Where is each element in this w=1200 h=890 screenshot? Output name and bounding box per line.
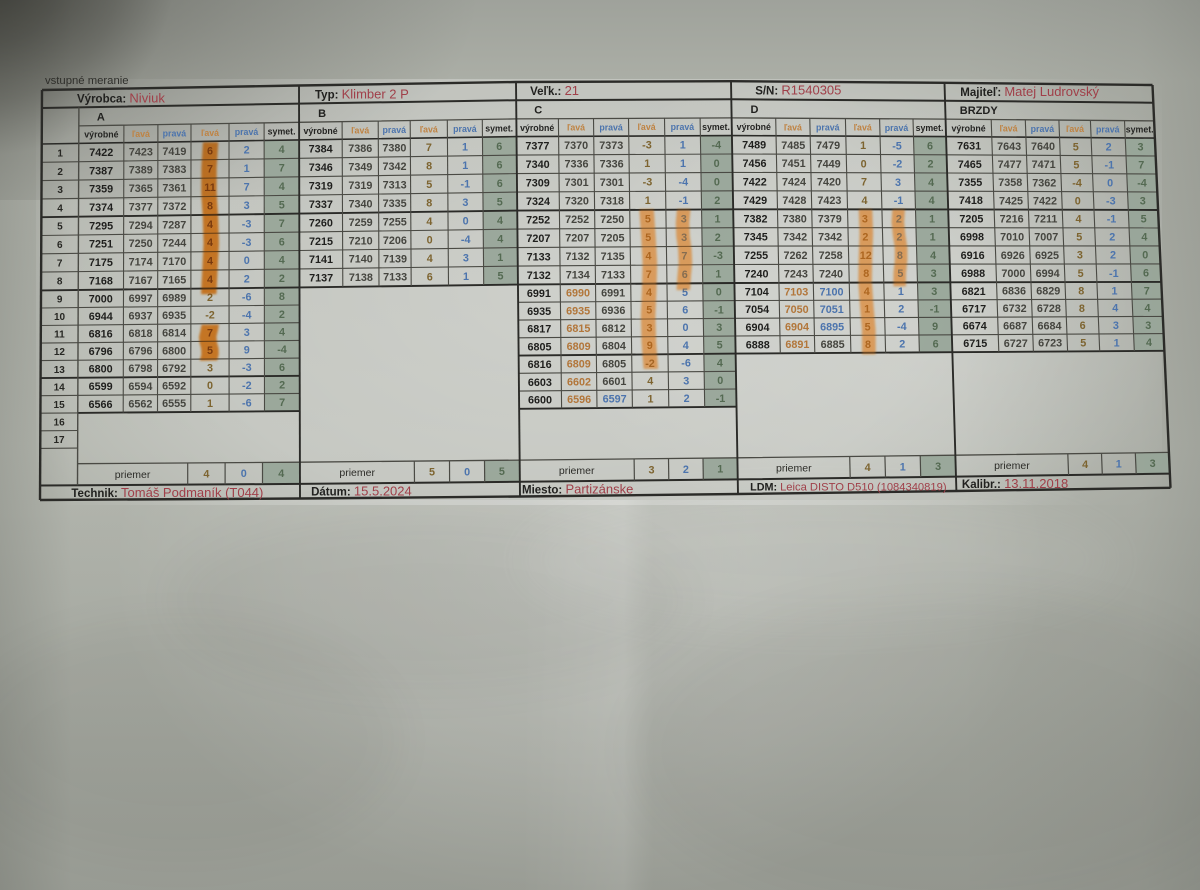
- svg-text:7384: 7384: [309, 144, 333, 156]
- svg-text:7471: 7471: [1032, 159, 1056, 171]
- svg-text:7346: 7346: [309, 162, 333, 174]
- svg-text:7340: 7340: [348, 198, 372, 210]
- svg-text:pravá: pravá: [453, 124, 477, 134]
- svg-text:symet.: symet.: [916, 123, 944, 133]
- svg-text:6555: 6555: [162, 398, 186, 410]
- svg-text:4: 4: [683, 340, 689, 352]
- svg-text:2: 2: [898, 304, 904, 316]
- svg-text:6: 6: [496, 141, 502, 153]
- svg-text:6732: 6732: [1003, 303, 1027, 315]
- svg-text:7133: 7133: [601, 269, 625, 281]
- svg-text:7342: 7342: [818, 232, 842, 244]
- svg-text:14: 14: [54, 382, 66, 393]
- svg-text:7243: 7243: [784, 268, 808, 280]
- svg-text:7362: 7362: [1032, 177, 1056, 189]
- svg-text:2: 2: [57, 167, 63, 178]
- svg-text:ľavá: ľavá: [351, 125, 369, 135]
- svg-text:6796: 6796: [89, 346, 113, 358]
- svg-text:-2: -2: [893, 159, 903, 171]
- svg-text:pravá: pravá: [383, 125, 407, 135]
- svg-text:2: 2: [714, 195, 720, 207]
- svg-text:7294: 7294: [129, 220, 153, 232]
- svg-text:-1: -1: [714, 304, 724, 316]
- svg-text:1: 1: [715, 269, 721, 281]
- svg-text:6937: 6937: [128, 310, 152, 322]
- svg-text:-3: -3: [242, 237, 252, 249]
- svg-text:7287: 7287: [162, 219, 186, 231]
- svg-text:5: 5: [1078, 268, 1084, 280]
- svg-text:7138: 7138: [349, 272, 373, 284]
- svg-text:6562: 6562: [128, 398, 152, 410]
- svg-text:7336: 7336: [600, 158, 624, 170]
- svg-text:7168: 7168: [89, 275, 113, 287]
- svg-text:7479: 7479: [816, 140, 840, 152]
- svg-text:výrobné: výrobné: [737, 122, 771, 132]
- svg-text:6816: 6816: [528, 359, 552, 371]
- svg-text:priemer: priemer: [115, 469, 151, 481]
- svg-text:Typ: Klimber 2 P: Typ: Klimber 2 P: [315, 87, 409, 102]
- svg-text:7358: 7358: [998, 177, 1022, 189]
- svg-text:7007: 7007: [1034, 232, 1058, 244]
- svg-text:B: B: [318, 108, 326, 120]
- svg-text:6809: 6809: [567, 359, 591, 371]
- svg-text:7251: 7251: [89, 239, 113, 251]
- svg-text:6814: 6814: [162, 328, 186, 340]
- svg-text:6: 6: [57, 240, 63, 251]
- svg-text:7: 7: [279, 218, 285, 230]
- svg-text:4: 4: [426, 216, 432, 228]
- svg-text:8: 8: [1078, 286, 1084, 298]
- svg-text:7429: 7429: [743, 195, 767, 207]
- svg-text:symet.: symet.: [1126, 125, 1154, 135]
- svg-text:1: 1: [717, 464, 723, 476]
- svg-text:6944: 6944: [89, 311, 113, 323]
- svg-text:2: 2: [279, 309, 285, 321]
- svg-text:3: 3: [244, 327, 250, 339]
- svg-text:6599: 6599: [89, 381, 113, 393]
- svg-text:7449: 7449: [817, 158, 841, 170]
- svg-text:6792: 6792: [162, 363, 186, 375]
- svg-text:1: 1: [680, 158, 686, 170]
- svg-text:6602: 6602: [567, 376, 591, 388]
- svg-text:6904: 6904: [785, 322, 809, 334]
- svg-text:-4: -4: [897, 321, 907, 333]
- svg-text:6895: 6895: [820, 321, 844, 333]
- svg-text:2: 2: [684, 393, 690, 405]
- svg-text:6805: 6805: [527, 341, 551, 353]
- svg-text:7100: 7100: [819, 286, 843, 298]
- svg-text:0: 0: [1075, 196, 1081, 208]
- svg-text:7260: 7260: [309, 217, 333, 229]
- svg-text:6998: 6998: [960, 232, 984, 244]
- svg-text:6674: 6674: [963, 321, 987, 333]
- svg-text:7383: 7383: [162, 164, 186, 176]
- svg-text:4: 4: [929, 195, 935, 207]
- svg-text:0: 0: [714, 176, 720, 188]
- svg-text:1: 1: [930, 232, 936, 244]
- svg-text:6566: 6566: [88, 399, 112, 411]
- svg-text:6888: 6888: [746, 340, 770, 352]
- svg-text:Miesto: Partizánske: Miesto: Partizánske: [522, 481, 633, 496]
- svg-text:7134: 7134: [566, 270, 590, 282]
- svg-text:7370: 7370: [564, 140, 588, 152]
- svg-text:3: 3: [244, 200, 250, 212]
- svg-text:0: 0: [714, 158, 720, 170]
- svg-text:7489: 7489: [742, 140, 766, 152]
- svg-text:ľavá: ľavá: [420, 124, 438, 134]
- svg-text:1: 1: [644, 158, 650, 170]
- svg-text:-3: -3: [242, 218, 252, 230]
- svg-text:2: 2: [1110, 250, 1116, 262]
- svg-text:6804: 6804: [602, 341, 626, 353]
- svg-text:7210: 7210: [349, 235, 373, 247]
- svg-text:7377: 7377: [525, 141, 549, 153]
- svg-text:0: 0: [463, 215, 469, 227]
- svg-text:1: 1: [462, 141, 468, 153]
- svg-text:1: 1: [463, 271, 469, 283]
- svg-text:4: 4: [1146, 337, 1152, 349]
- svg-text:4: 4: [57, 203, 63, 214]
- svg-text:-1: -1: [1109, 268, 1119, 280]
- svg-text:7: 7: [57, 258, 63, 269]
- svg-text:4: 4: [1112, 303, 1118, 315]
- svg-text:LDM: Leica DISTO D510 (1084340: LDM: Leica DISTO D510 (1084340819): [750, 482, 947, 494]
- svg-text:7205: 7205: [600, 232, 624, 244]
- svg-text:6800: 6800: [89, 364, 113, 376]
- svg-text:7010: 7010: [1000, 232, 1024, 244]
- svg-text:7170: 7170: [162, 256, 186, 268]
- svg-text:7382: 7382: [743, 213, 767, 225]
- svg-text:pravá: pravá: [599, 122, 623, 132]
- svg-text:6829: 6829: [1036, 286, 1060, 298]
- svg-text:6798: 6798: [128, 363, 152, 375]
- svg-text:7132: 7132: [527, 270, 551, 282]
- svg-text:4: 4: [497, 233, 503, 245]
- svg-text:3: 3: [1140, 196, 1146, 208]
- svg-text:1: 1: [860, 140, 866, 152]
- svg-text:2: 2: [1109, 232, 1115, 244]
- svg-text:-4: -4: [1072, 178, 1082, 190]
- svg-text:7175: 7175: [89, 257, 113, 269]
- svg-text:5: 5: [57, 222, 63, 233]
- svg-text:-1: -1: [460, 178, 470, 190]
- svg-text:2: 2: [715, 232, 721, 244]
- svg-text:ľavá: ľavá: [638, 122, 656, 132]
- svg-text:5: 5: [429, 467, 435, 479]
- svg-text:7336: 7336: [564, 159, 588, 171]
- svg-text:7: 7: [1144, 285, 1150, 297]
- svg-text:-4: -4: [277, 344, 287, 356]
- svg-text:-1: -1: [930, 303, 940, 315]
- svg-text:4: 4: [497, 215, 503, 227]
- svg-text:7133: 7133: [383, 272, 407, 284]
- svg-text:Dátum: 15.5.2024: Dátum: 15.5.2024: [311, 483, 412, 498]
- svg-text:-1: -1: [679, 195, 689, 207]
- svg-text:7425: 7425: [999, 195, 1023, 207]
- svg-text:výrobné: výrobné: [520, 123, 554, 133]
- svg-text:4: 4: [928, 177, 934, 189]
- svg-text:7372: 7372: [162, 201, 186, 213]
- svg-text:7255: 7255: [744, 250, 768, 262]
- svg-text:7320: 7320: [565, 196, 589, 208]
- svg-text:4: 4: [278, 468, 284, 480]
- svg-text:7167: 7167: [129, 275, 153, 287]
- svg-text:7301: 7301: [565, 177, 589, 189]
- svg-text:7324: 7324: [526, 196, 550, 208]
- svg-text:6684: 6684: [1037, 320, 1061, 332]
- svg-text:pravá: pravá: [816, 123, 840, 133]
- svg-text:7643: 7643: [997, 141, 1021, 153]
- svg-text:5: 5: [497, 196, 503, 208]
- svg-text:7319: 7319: [309, 181, 333, 193]
- svg-text:7423: 7423: [129, 146, 153, 158]
- svg-text:4: 4: [861, 195, 867, 207]
- svg-text:ľavá: ľavá: [201, 128, 219, 138]
- svg-text:6805: 6805: [602, 358, 626, 370]
- svg-text:3: 3: [1077, 250, 1083, 262]
- svg-text:0: 0: [716, 287, 722, 299]
- svg-text:7240: 7240: [819, 268, 843, 280]
- svg-text:7258: 7258: [819, 250, 843, 262]
- svg-text:7340: 7340: [526, 159, 550, 171]
- svg-text:1: 1: [1116, 459, 1122, 471]
- svg-text:17: 17: [53, 435, 65, 446]
- svg-text:ľavá: ľavá: [1066, 124, 1084, 134]
- svg-text:6800: 6800: [162, 345, 186, 357]
- svg-text:-6: -6: [242, 292, 252, 304]
- svg-text:pravá: pravá: [885, 123, 909, 133]
- svg-text:7309: 7309: [526, 178, 550, 190]
- svg-text:-3: -3: [242, 362, 252, 374]
- svg-text:pravá: pravá: [235, 127, 259, 137]
- svg-text:0: 0: [717, 375, 723, 387]
- svg-text:Majiteľ: Matej Ludrovský: Majiteľ: Matej Ludrovský: [960, 84, 1099, 99]
- svg-text:7165: 7165: [162, 275, 186, 287]
- svg-text:7349: 7349: [348, 161, 372, 173]
- svg-text:-1: -1: [894, 195, 904, 207]
- svg-text:5: 5: [279, 200, 285, 212]
- svg-text:pravá: pravá: [1096, 124, 1120, 134]
- svg-text:1: 1: [647, 393, 653, 405]
- svg-text:D: D: [751, 104, 759, 116]
- svg-text:Kalibr.: 13.11.2018: Kalibr.: 13.11.2018: [962, 476, 1068, 491]
- svg-text:výrobné: výrobné: [951, 123, 985, 133]
- svg-text:5: 5: [499, 466, 505, 478]
- svg-text:6: 6: [279, 362, 285, 374]
- svg-text:6991: 6991: [527, 288, 551, 300]
- svg-text:4: 4: [1144, 303, 1150, 315]
- svg-text:0: 0: [207, 380, 213, 392]
- svg-text:0: 0: [861, 158, 867, 170]
- svg-text:-3: -3: [643, 177, 653, 189]
- svg-text:0: 0: [427, 234, 433, 246]
- svg-text:1: 1: [714, 213, 720, 225]
- svg-text:6809: 6809: [567, 341, 591, 353]
- svg-text:8: 8: [1079, 303, 1085, 315]
- svg-text:-4: -4: [711, 140, 721, 152]
- svg-text:4: 4: [1075, 214, 1081, 226]
- svg-text:priemer: priemer: [559, 465, 595, 477]
- svg-text:6916: 6916: [961, 250, 985, 262]
- svg-text:7428: 7428: [782, 195, 806, 207]
- svg-text:1: 1: [898, 286, 904, 298]
- svg-text:4: 4: [1082, 459, 1088, 471]
- svg-text:-3: -3: [642, 140, 652, 152]
- svg-text:priemer: priemer: [339, 467, 375, 479]
- svg-text:6997: 6997: [129, 293, 153, 305]
- svg-text:6: 6: [1080, 320, 1086, 332]
- svg-text:symet.: symet.: [268, 127, 296, 137]
- svg-text:1: 1: [497, 252, 503, 264]
- svg-text:2: 2: [683, 464, 689, 476]
- svg-text:3: 3: [935, 461, 941, 473]
- svg-text:6: 6: [682, 305, 688, 317]
- svg-text:2: 2: [244, 145, 250, 157]
- svg-text:7319: 7319: [348, 180, 372, 192]
- svg-text:0: 0: [1107, 178, 1113, 190]
- svg-text:3: 3: [648, 464, 654, 476]
- svg-text:6715: 6715: [963, 338, 987, 350]
- svg-text:6596: 6596: [567, 394, 591, 406]
- svg-text:Technik: Tomáš Podmaník (T044): Technik: Tomáš Podmaník (T044): [71, 485, 263, 500]
- svg-text:Veľk.: 21: Veľk.: 21: [530, 83, 579, 98]
- svg-text:7252: 7252: [526, 215, 550, 227]
- svg-text:6: 6: [496, 159, 502, 171]
- svg-text:priemer: priemer: [776, 463, 812, 475]
- svg-text:6989: 6989: [162, 292, 186, 304]
- svg-text:ľavá: ľavá: [784, 122, 802, 132]
- svg-text:7422: 7422: [1033, 195, 1057, 207]
- svg-text:7423: 7423: [817, 195, 841, 207]
- svg-text:3: 3: [463, 252, 469, 264]
- svg-text:6885: 6885: [821, 339, 845, 351]
- svg-text:A: A: [97, 112, 105, 124]
- svg-text:7205: 7205: [959, 213, 983, 225]
- svg-text:1: 1: [900, 461, 906, 473]
- svg-text:7250: 7250: [129, 238, 153, 250]
- svg-text:5: 5: [1076, 232, 1082, 244]
- svg-text:8: 8: [426, 160, 432, 172]
- svg-text:7174: 7174: [129, 257, 153, 269]
- svg-text:1: 1: [1111, 285, 1117, 297]
- svg-text:7313: 7313: [383, 179, 407, 191]
- svg-text:pravá: pravá: [163, 128, 187, 138]
- svg-text:pravá: pravá: [671, 122, 695, 132]
- svg-text:5: 5: [1073, 159, 1079, 171]
- svg-text:7240: 7240: [744, 269, 768, 281]
- svg-text:7419: 7419: [162, 146, 186, 158]
- svg-text:7255: 7255: [383, 216, 407, 228]
- svg-text:6990: 6990: [566, 288, 590, 300]
- svg-text:7477: 7477: [998, 159, 1022, 171]
- svg-text:výrobné: výrobné: [84, 130, 118, 140]
- svg-text:12: 12: [54, 347, 66, 358]
- svg-text:8: 8: [426, 197, 432, 209]
- svg-text:6836: 6836: [1002, 286, 1026, 298]
- svg-text:7337: 7337: [309, 199, 333, 211]
- svg-text:ľavá: ľavá: [132, 129, 150, 139]
- svg-text:7301: 7301: [600, 177, 624, 189]
- svg-text:7374: 7374: [89, 202, 113, 214]
- svg-text:7207: 7207: [526, 233, 550, 245]
- svg-text:6: 6: [933, 338, 939, 350]
- svg-text:16: 16: [54, 418, 66, 429]
- svg-text:7342: 7342: [382, 161, 406, 173]
- svg-text:3: 3: [462, 197, 468, 209]
- svg-text:7373: 7373: [599, 140, 623, 152]
- svg-text:6594: 6594: [128, 381, 152, 393]
- svg-text:4: 4: [930, 250, 936, 262]
- svg-text:7103: 7103: [784, 286, 808, 298]
- svg-text:-5: -5: [892, 140, 902, 152]
- svg-text:6994: 6994: [1036, 268, 1060, 280]
- svg-text:9: 9: [244, 345, 250, 357]
- svg-text:5: 5: [1080, 338, 1086, 350]
- svg-text:7365: 7365: [129, 183, 153, 195]
- svg-text:4: 4: [647, 376, 653, 388]
- svg-text:-3: -3: [1106, 196, 1116, 208]
- svg-text:0: 0: [682, 322, 688, 334]
- svg-text:1: 1: [929, 213, 935, 225]
- svg-text:1: 1: [57, 149, 63, 160]
- svg-text:3: 3: [895, 177, 901, 189]
- svg-text:7137: 7137: [309, 273, 333, 285]
- svg-text:6: 6: [427, 271, 433, 283]
- svg-text:6925: 6925: [1035, 250, 1059, 262]
- svg-text:ľavá: ľavá: [567, 123, 585, 133]
- svg-text:-4: -4: [678, 177, 688, 189]
- svg-text:6821: 6821: [962, 286, 986, 298]
- svg-text:6936: 6936: [601, 305, 625, 317]
- svg-text:6988: 6988: [961, 268, 985, 280]
- svg-text:7206: 7206: [383, 235, 407, 247]
- svg-text:7: 7: [426, 142, 432, 154]
- svg-text:7386: 7386: [348, 143, 372, 155]
- svg-text:symet.: symet.: [702, 122, 730, 132]
- svg-text:0: 0: [241, 468, 247, 480]
- svg-text:6600: 6600: [528, 395, 552, 407]
- svg-text:2: 2: [1106, 142, 1112, 154]
- svg-text:6816: 6816: [89, 328, 113, 340]
- svg-text:-3: -3: [713, 250, 723, 262]
- svg-text:7335: 7335: [383, 198, 407, 210]
- svg-text:7133: 7133: [527, 252, 551, 264]
- svg-text:6817: 6817: [527, 324, 551, 336]
- svg-text:7422: 7422: [89, 147, 113, 159]
- svg-text:8: 8: [279, 291, 285, 303]
- svg-text:7132: 7132: [565, 251, 589, 263]
- svg-text:6723: 6723: [1038, 338, 1062, 350]
- svg-text:0: 0: [1142, 250, 1148, 262]
- svg-text:7424: 7424: [782, 177, 806, 189]
- svg-text:6891: 6891: [785, 339, 809, 351]
- svg-text:6597: 6597: [603, 394, 627, 406]
- svg-text:0: 0: [244, 255, 250, 267]
- svg-text:9: 9: [57, 295, 63, 306]
- svg-text:7104: 7104: [745, 287, 769, 299]
- svg-text:6601: 6601: [602, 376, 626, 388]
- svg-text:2: 2: [927, 159, 933, 171]
- svg-text:7000: 7000: [89, 293, 113, 305]
- svg-text:3: 3: [1150, 458, 1156, 470]
- svg-text:3: 3: [57, 185, 63, 196]
- svg-text:15: 15: [54, 400, 66, 411]
- svg-text:7050: 7050: [785, 304, 809, 316]
- svg-text:7211: 7211: [1034, 214, 1057, 226]
- svg-text:6815: 6815: [566, 323, 590, 335]
- svg-text:7: 7: [861, 177, 867, 189]
- svg-text:6687: 6687: [1003, 321, 1027, 333]
